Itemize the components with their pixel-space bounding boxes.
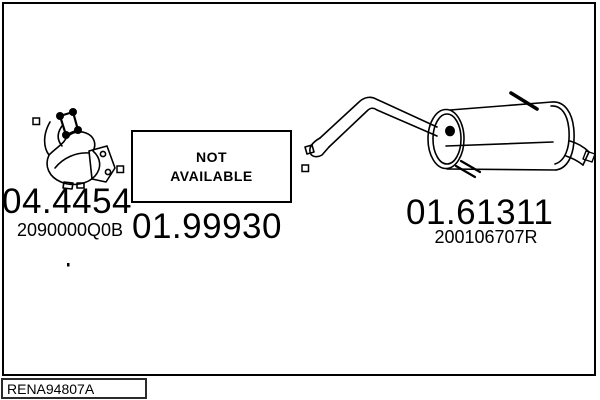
oem-number-catalytic-converter: 2090000Q0B <box>0 221 140 239</box>
oem-number-rear-muffler: 200106707R <box>416 228 556 246</box>
dot-marker <box>67 263 70 267</box>
not-available-line1: NOT <box>196 148 227 167</box>
not-available-line2: AVAILABLE <box>170 167 253 186</box>
connection-point-marker <box>302 165 309 172</box>
not-available-box: NOT AVAILABLE <box>131 130 292 203</box>
reference-code-box: RENA94807A <box>1 378 147 399</box>
rear-muffler-drawing <box>305 93 595 177</box>
reference-code: RENA94807A <box>7 382 94 396</box>
part-number-catalytic-converter[interactable]: 04.4454 <box>2 185 132 219</box>
catalytic-converter-drawing <box>45 109 115 189</box>
part-number-rear-muffler[interactable]: 01.61311 <box>406 196 553 230</box>
exhaust-parts-diagram: NOT AVAILABLE 04.4454 2090000Q0B 01.9993… <box>0 0 600 400</box>
connection-point-marker <box>117 166 124 173</box>
part-number-middle-section[interactable]: 01.99930 <box>132 210 282 244</box>
connection-point-marker <box>33 118 40 125</box>
